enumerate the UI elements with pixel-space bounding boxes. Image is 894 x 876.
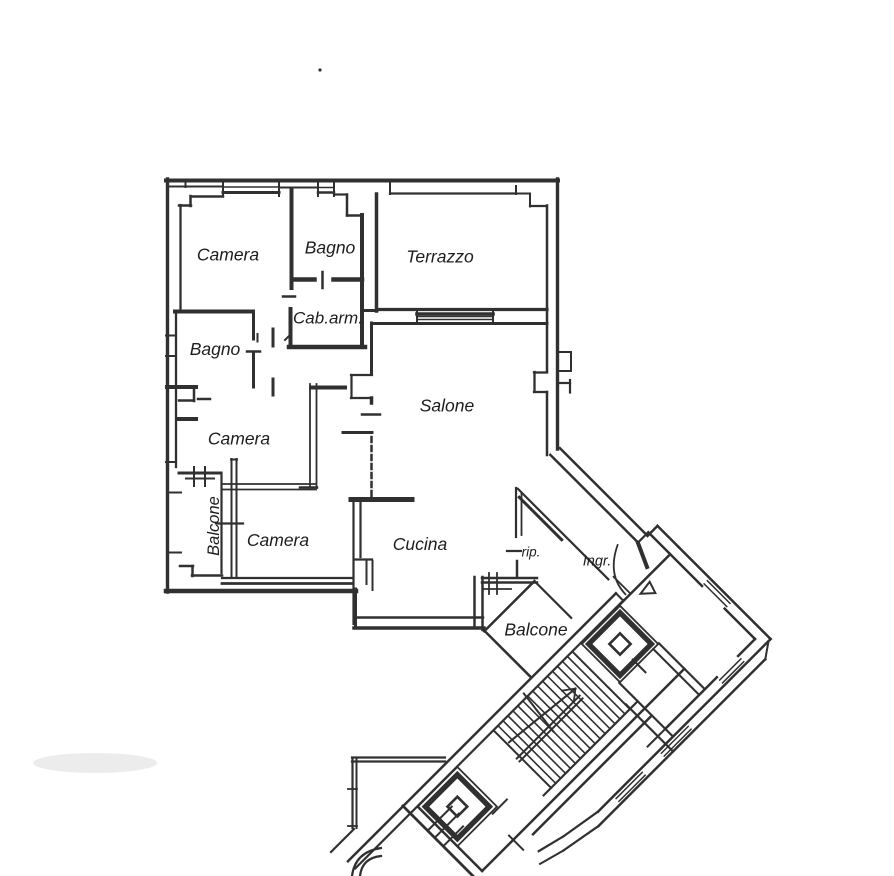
svg-text:Bagno: Bagno [305, 238, 356, 258]
svg-text:Camera: Camera [197, 245, 260, 265]
svg-text:Cucina: Cucina [393, 534, 448, 554]
svg-text:Salone: Salone [420, 396, 475, 416]
svg-text:Balcone: Balcone [205, 496, 223, 556]
svg-text:Cab.arm.: Cab.arm. [293, 309, 363, 328]
svg-text:Ingr.: Ingr. [583, 554, 611, 570]
svg-text:Camera: Camera [208, 429, 271, 449]
svg-text:Camera: Camera [247, 530, 310, 550]
svg-text:Terrazzo: Terrazzo [406, 247, 474, 267]
svg-text:rip.: rip. [522, 545, 541, 560]
svg-text:Balcone: Balcone [504, 620, 568, 640]
svg-text:Bagno: Bagno [190, 339, 241, 359]
